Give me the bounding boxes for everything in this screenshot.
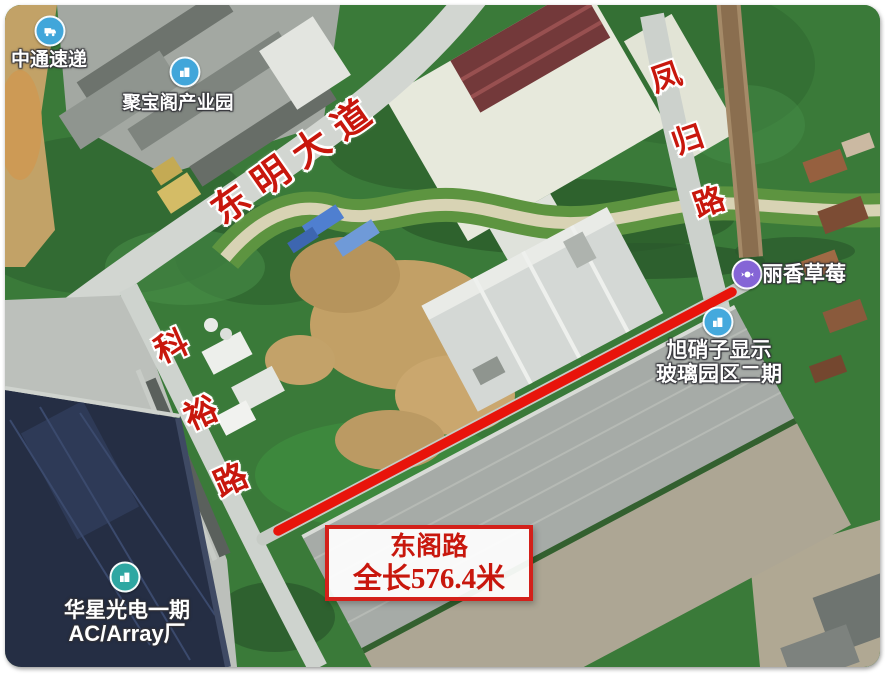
zto-truck-icon (35, 16, 66, 47)
route-annotation-box: 东阁路 全长576.4米 (325, 525, 533, 601)
poi-label-lixiang: 丽香草莓 (762, 258, 846, 288)
poi-label-asahi: 旭硝子显示 玻璃园区二期 (656, 339, 782, 387)
jubaoge-building-icon (170, 57, 201, 88)
csot-building-icon (110, 562, 141, 593)
route-annotation-road-name: 东阁路 (329, 531, 529, 562)
route-annotation-length: 全长576.4米 (329, 562, 529, 597)
poi-label-jubaoge: 聚宝阁产业园 (122, 89, 233, 115)
lixiang-candy-icon (732, 259, 763, 290)
asahi-building-icon (703, 307, 734, 338)
satellite-map-image: 中通速递 聚宝阁产业园 丽香草莓 旭硝子显示 玻璃园区二期 华星光电一期 AC/… (5, 5, 880, 667)
poi-label-csot: 华星光电一期 AC/Array厂 (64, 599, 190, 645)
poi-label-zto: 中通速递 (11, 45, 87, 72)
